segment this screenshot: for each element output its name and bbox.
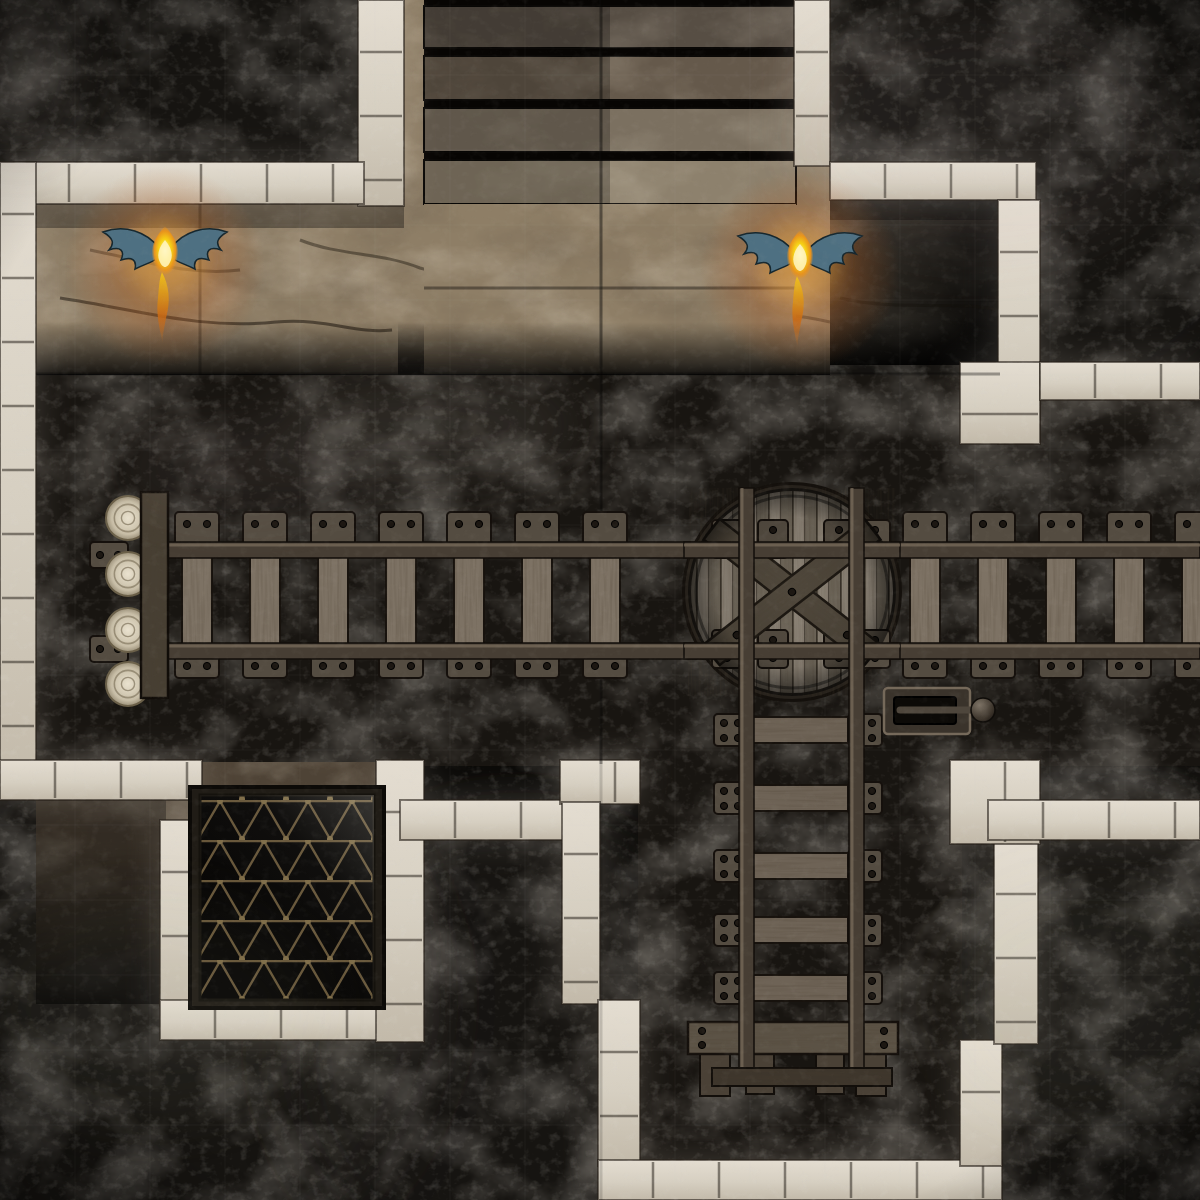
dungeon-map-canvas[interactable] [0,0,1200,1200]
post-effects-layer [0,0,1200,1200]
map-scene [0,0,1200,1200]
